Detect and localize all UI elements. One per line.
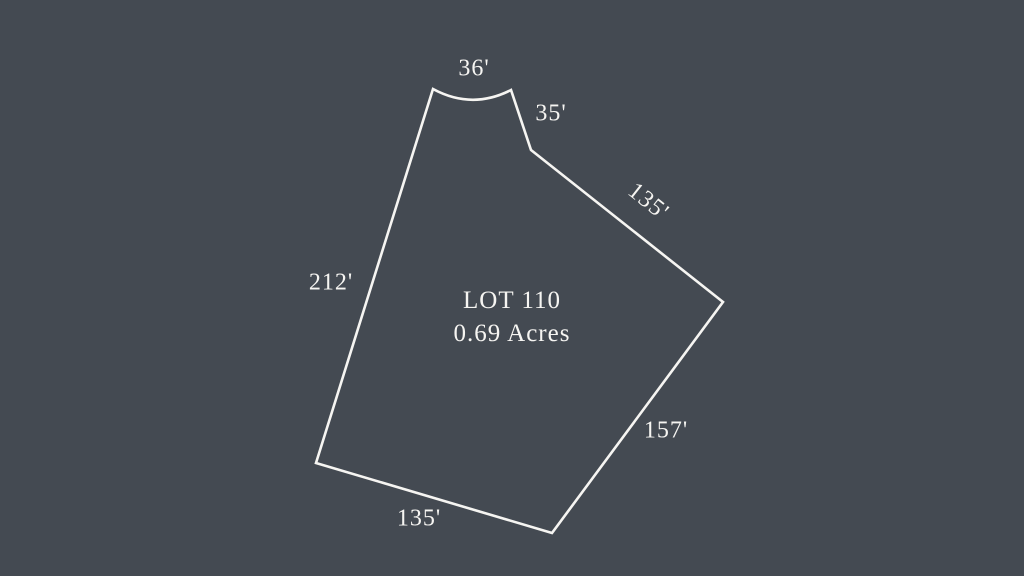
lot-info: LOT 110 0.69 Acres [454,284,571,350]
dimension-label-west-side: 212' [309,270,353,297]
dimension-label-south-side: 135' [397,506,441,533]
dimension-label-southeast-side: 157' [644,418,688,445]
dimension-label-upper-right-short: 35' [535,101,566,128]
lot-number: LOT 110 [454,284,571,317]
dimension-label-top-curve: 36' [458,56,489,83]
lot-area: 0.69 Acres [454,317,571,350]
lot-survey-diagram: 36' 35' 135' 212' 157' 135' LOT 110 0.69… [0,0,1024,576]
